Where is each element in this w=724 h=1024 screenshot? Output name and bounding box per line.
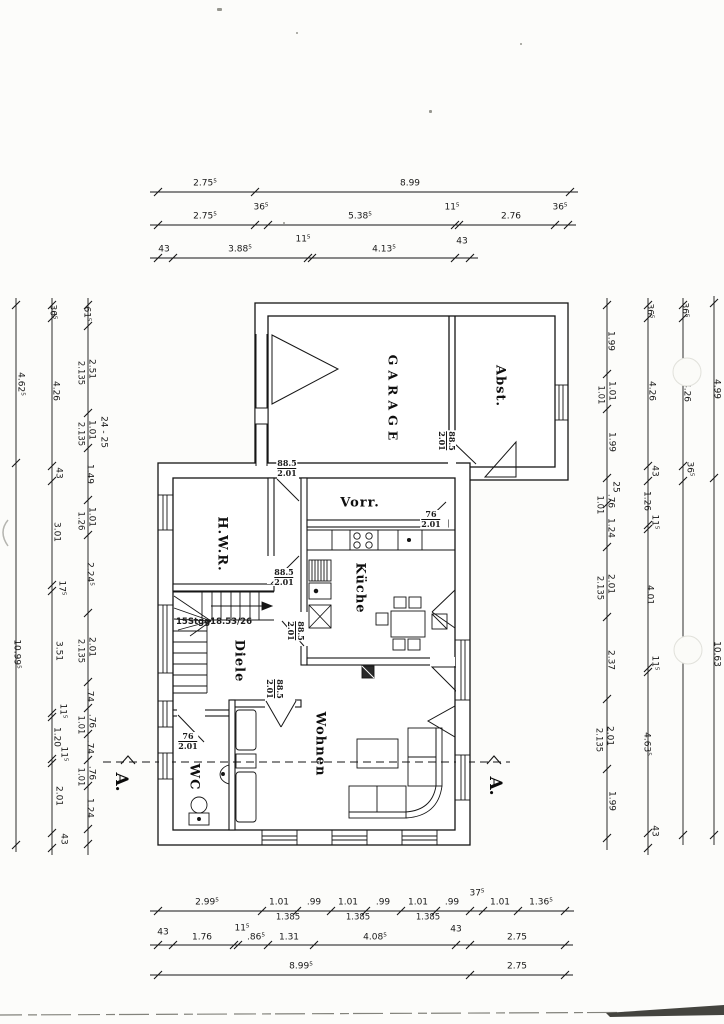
door-width: 88.5 — [297, 621, 306, 640]
dimension-label: 43 — [157, 929, 168, 938]
dimension-label: 1.36⁵ — [529, 899, 553, 908]
dimension-label: 43 — [158, 246, 169, 255]
door-size-label: 762.01 — [177, 732, 198, 750]
dimension-label: 1.01 — [76, 716, 85, 735]
door-height: 2.01 — [421, 519, 440, 529]
scanned-floor-plan-page: 2.75⁵8.992.75⁵36⁵5.38⁵11⁵2.7636⁵433.88⁵1… — [0, 0, 724, 1024]
hole-punch-artifact — [673, 358, 702, 387]
dimension-label: 11⁵ — [59, 746, 68, 761]
dimension-label: 36⁵ — [645, 303, 654, 318]
dimension-label: 24 - 25 — [99, 416, 108, 448]
dimension-label: .74 — [85, 688, 94, 702]
dimension-label: .76 — [87, 766, 96, 780]
dimension-label: 2.01 — [605, 726, 614, 746]
room-label-hwr: H.W.R. — [215, 516, 230, 571]
dimension-label: 17⁵ — [57, 580, 66, 595]
dimension-label: 1.01 — [87, 420, 96, 440]
door-height: 2.01 — [287, 621, 297, 640]
room-label-abst: Abst. — [493, 365, 508, 407]
dimension-label: 1.49 — [85, 464, 94, 484]
door-size-label: 88.52.01 — [438, 430, 456, 451]
door-height: 2.01 — [178, 741, 197, 751]
dimension-label: 2.37 — [606, 650, 615, 670]
dimension-label: .86⁵ — [247, 934, 265, 943]
dimension-label: 1.01 — [607, 381, 616, 401]
door-size-label: 88.52.01 — [266, 678, 284, 699]
door-height: 2.01 — [274, 577, 293, 587]
dimension-label: 4.08⁵ — [363, 934, 387, 943]
scan-speck-artifact — [296, 32, 298, 34]
stair-annotation: 15Stgg18.53/26 — [176, 617, 252, 627]
dimension-label: 1.01 — [595, 496, 604, 515]
dimension-label: 36⁵ — [552, 204, 567, 213]
door-size-label: 762.01 — [420, 510, 441, 528]
door-size-label: 88.52.01 — [273, 568, 294, 586]
dimension-label: 1.385 — [276, 914, 300, 923]
dimension-label: 11⁵ — [444, 204, 459, 213]
dimension-label: 1.76 — [192, 934, 212, 943]
door-width: 88.5 — [277, 459, 296, 468]
scan-speck-artifact — [429, 110, 432, 113]
dimension-label: 43 — [54, 467, 63, 478]
dimension-label: .76 — [606, 494, 615, 508]
dimension-label: 1.01 — [338, 899, 358, 908]
dimension-label: 1.385 — [346, 914, 370, 923]
room-label-garage: GARAGE — [386, 355, 401, 446]
dimension-label: 11⁵ — [295, 236, 310, 245]
hole-punch-artifact — [674, 636, 703, 665]
dimension-label: 1.01 — [269, 899, 289, 908]
dimension-label: 2.76 — [501, 213, 521, 222]
dimension-label: 1.01 — [87, 507, 96, 527]
dimension-label: 2.01 — [87, 637, 96, 657]
door-width: 76 — [421, 510, 440, 519]
dimension-label: 2.51 — [87, 359, 96, 379]
room-label-wc: WC — [187, 764, 202, 791]
dimension-label: 4.01 — [645, 585, 654, 605]
door-width: 76 — [178, 732, 197, 741]
dimension-label: 5.38⁵ — [348, 213, 372, 222]
dimension-label: 2.135 — [595, 576, 604, 600]
dimension-label: 3.51 — [54, 641, 63, 661]
room-label-wohnen: Wohnen — [313, 712, 328, 777]
dimension-label: 43 — [456, 238, 467, 247]
dimension-label: 11⁵ — [650, 514, 659, 529]
dimension-label: 1.385 — [416, 914, 440, 923]
door-height: 2.01 — [438, 431, 448, 450]
dimension-label: 2.135 — [76, 639, 85, 663]
dimension-label: 1.24 — [85, 798, 94, 818]
dimension-label: 61⁵ — [82, 306, 91, 321]
dimension-label: 4.99 — [712, 379, 721, 399]
dimension-label: 11⁵ — [650, 655, 659, 670]
room-label-vorr: Vorr. — [340, 496, 380, 511]
door-width: 88.5 — [276, 679, 285, 698]
dimension-label: 2.24⁵ — [85, 562, 94, 586]
dimension-label: 2.75⁵ — [193, 213, 217, 222]
dimension-label: 43 — [650, 465, 659, 476]
dimension-label: .74 — [85, 740, 94, 754]
dimension-label: 2.135 — [594, 728, 603, 752]
dimension-label: .99 — [445, 899, 459, 908]
room-label-kche: Küche — [353, 562, 368, 613]
dimension-label: 43 — [650, 825, 659, 836]
dimension-label: 1.01 — [76, 768, 85, 787]
scan-speck-artifact — [520, 43, 522, 45]
dimension-label: 2.135 — [76, 361, 85, 385]
door-size-label: 88.52.01 — [276, 459, 297, 477]
dimension-label: 10.99⁵ — [12, 639, 21, 668]
dimension-label: 8.99 — [400, 180, 420, 189]
dimension-label: 11⁵ — [58, 703, 67, 718]
dimension-label: 2.75 — [507, 963, 527, 972]
door-height: 2.01 — [277, 468, 296, 478]
dimension-label: 36⁵ — [685, 461, 694, 476]
dimension-label: 1.24 — [606, 518, 615, 538]
door-width: 88.5 — [274, 568, 293, 577]
dimension-label: 2.99⁵ — [195, 899, 219, 908]
dimension-label: 43 — [59, 833, 68, 844]
dimension-label: 1.26 — [642, 491, 651, 511]
dimension-label: 1.99 — [607, 432, 616, 452]
dimension-label: 4.63⁵ — [642, 732, 651, 756]
door-size-label: 88.52.01 — [287, 620, 305, 641]
section-marker: A. — [485, 776, 505, 795]
dimension-label: 8.99⁵ — [289, 963, 313, 972]
scan-speck-artifact — [283, 222, 285, 224]
dimension-label: 1.01 — [408, 899, 428, 908]
dimension-label: 36⁵ — [253, 204, 268, 213]
dimension-label: 4.62⁵ — [16, 372, 25, 396]
dimension-label: 1.01 — [596, 386, 605, 405]
dimension-label: .99 — [376, 899, 390, 908]
dimension-label: 2.01 — [54, 786, 63, 806]
dimension-label: 2.01 — [606, 574, 615, 594]
room-label-diele: Diele — [232, 640, 247, 683]
dimension-label: 36⁵ — [680, 302, 689, 317]
dimension-label: 1.26 — [76, 512, 85, 531]
dimension-label: 1.31 — [279, 934, 299, 943]
dimension-label: 25 — [611, 481, 620, 492]
scan-speck-artifact — [217, 8, 222, 11]
dimension-label: 2.75⁵ — [193, 180, 217, 189]
dimension-label: 3.88⁵ — [228, 246, 252, 255]
dimension-label: 43 — [450, 926, 461, 935]
dimension-label: 2.135 — [76, 422, 85, 446]
annotation-layer: 2.75⁵8.992.75⁵36⁵5.38⁵11⁵2.7636⁵433.88⁵1… — [0, 0, 724, 1024]
dimension-label: 1.20 — [52, 727, 61, 747]
dimension-label: 10.63 — [712, 641, 721, 667]
dimension-label: 4.26 — [51, 381, 60, 401]
dimension-label: 1.01 — [490, 899, 510, 908]
dimension-label: 4.13⁵ — [372, 246, 396, 255]
section-marker: A. — [111, 772, 131, 791]
door-height: 2.01 — [266, 679, 276, 698]
dimension-label: .76 — [87, 714, 96, 728]
door-width: 88.5 — [448, 431, 457, 450]
dimension-label: 1.99 — [606, 331, 615, 351]
dimension-label: 4.26 — [647, 381, 656, 401]
dimension-label: 3.01 — [52, 522, 61, 542]
dimension-label: 2.75 — [507, 934, 527, 943]
dimension-label: .99 — [307, 899, 321, 908]
dimension-label: 36⁵ — [48, 304, 57, 319]
dimension-label: 1.99 — [607, 791, 616, 811]
dimension-label: 37⁵ — [469, 890, 484, 899]
